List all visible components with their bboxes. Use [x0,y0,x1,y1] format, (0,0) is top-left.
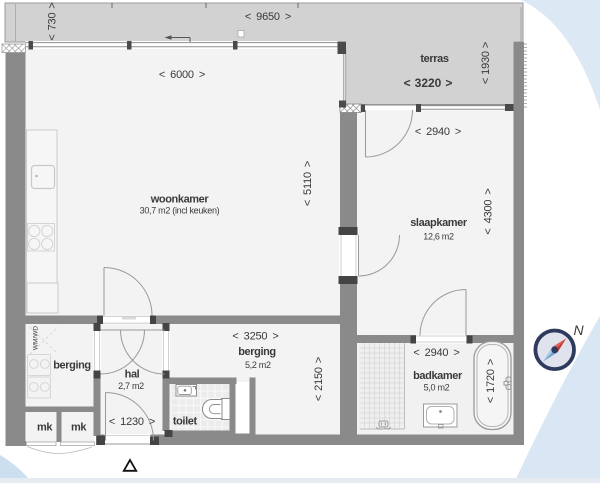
svg-text:berging: berging [53,360,91,372]
svg-text:badkamer: badkamer [413,370,463,382]
svg-text:5,2 m2: 5,2 m2 [245,360,271,370]
svg-text:30,7 m2 (incl keuken): 30,7 m2 (incl keuken) [140,206,220,216]
svg-text:WM/WD: WM/WD [33,326,40,350]
svg-text:berging: berging [238,346,276,358]
svg-text:mk: mk [37,422,53,434]
svg-text:12,6 m2: 12,6 m2 [423,232,454,242]
svg-text:mk: mk [71,422,87,434]
svg-text:slaapkamer: slaapkamer [410,217,468,229]
svg-text:woonkamer: woonkamer [150,194,210,206]
svg-text:toilet: toilet [173,416,198,428]
svg-text:terras: terras [420,53,448,65]
svg-text:hal: hal [125,369,140,381]
svg-text:N: N [574,322,585,338]
svg-text:5,0 m2: 5,0 m2 [424,383,450,393]
svg-text:2,7 m2: 2,7 m2 [118,381,144,391]
svg-text:<730>: <730> [47,2,59,40]
